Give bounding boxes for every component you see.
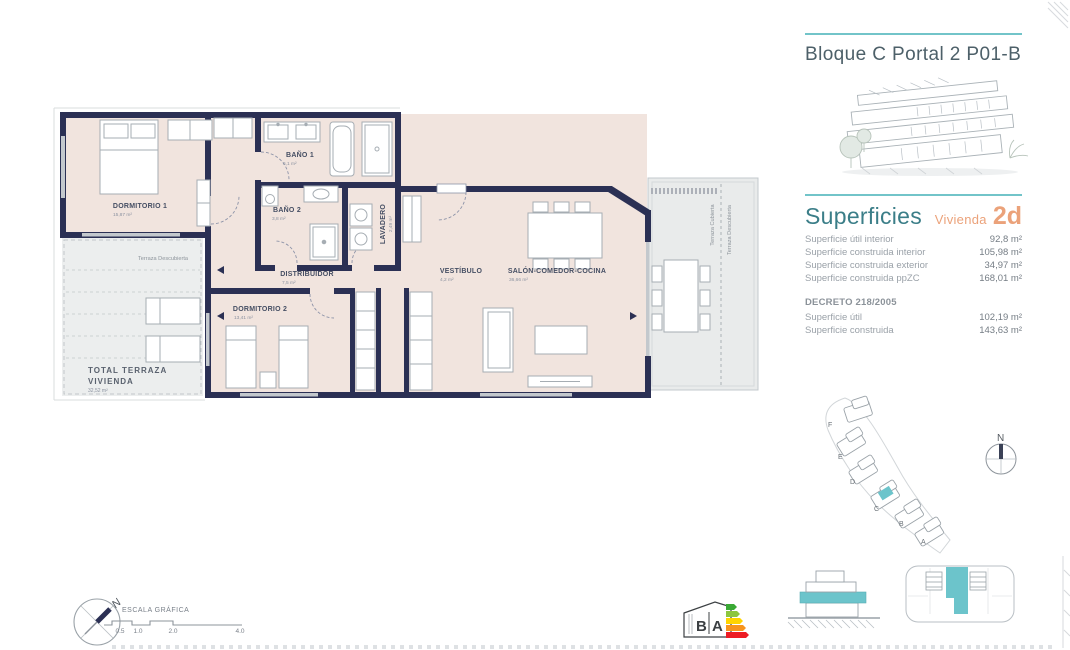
energy-arrows	[726, 604, 749, 638]
row-value: 34,97 m²	[985, 259, 1023, 272]
decreto-table: Superficie útil 102,19 m² Superficie con…	[805, 311, 1022, 337]
energy-letter-a: A	[712, 618, 723, 635]
site-label-d: D	[850, 479, 855, 486]
row-value: 168,01 m²	[979, 272, 1022, 285]
row-label: Superficie construida ppZC	[805, 272, 920, 285]
room-area-dormitorio1: 15,87 m²	[113, 212, 132, 218]
page-title: Bloque C Portal 2 P01-B	[805, 44, 1035, 66]
table-row: Superficie construida ppZC 168,01 m²	[805, 272, 1022, 285]
room-label-vestibulo: VESTÍBULO	[440, 266, 483, 275]
vivienda-label: Vivienda	[935, 212, 987, 227]
entrance-door-leaf	[437, 184, 466, 193]
room-label-dormitorio1: DORMITORIO 1	[113, 203, 167, 210]
room-area-bano2: 3,8 m²	[272, 216, 286, 222]
room-area-lavadero: 2,49 m²	[388, 215, 394, 232]
superficies-header: Superficies Vivienda 2d	[805, 202, 1022, 231]
terrace-open-label: Terraza Descubierta	[727, 204, 733, 255]
room-area-distribuidor: 7,5 m²	[282, 280, 296, 286]
scale-tick-10: 1.0	[133, 628, 142, 635]
total-terrace-area: 32,52 m²	[88, 388, 108, 394]
row-label: Superficie útil interior	[805, 233, 894, 246]
row-value: 105,98 m²	[979, 246, 1022, 259]
vivienda-code: 2d	[993, 202, 1022, 231]
table-row: Superficie útil interior 92,8 m²	[805, 233, 1022, 246]
scale-tick-20: 2.0	[168, 628, 177, 635]
terrace-left: Terraza Descubierta TOTAL TERRAZA VIVIEN…	[62, 238, 203, 396]
site-label-b: B	[899, 521, 904, 528]
sheet-edge-marks	[1048, 2, 1070, 648]
site-label-a: A	[921, 539, 926, 546]
room-label-bano2: BAÑO 2	[273, 205, 301, 214]
room-area-bano1: 6,1 m²	[283, 161, 297, 167]
row-value: 92,8 m²	[990, 233, 1022, 246]
table-row: Superficie útil 102,19 m²	[805, 311, 1022, 324]
site-label-f: F	[828, 422, 832, 429]
superficies-title: Superficies	[805, 203, 922, 230]
panel-mid-rule	[805, 194, 1022, 196]
row-label: Superficie construida	[805, 324, 894, 337]
superficies-table: Superficie útil interior 92,8 m² Superfi…	[805, 233, 1022, 285]
room-label-salon: SALÓN-COMEDOR-COCINA	[508, 266, 606, 275]
table-row: Superficie construida 143,63 m²	[805, 324, 1022, 337]
cut-off-disclaimer-text	[112, 645, 1057, 649]
room-label-distribuidor: DISTRIBUIDOR	[280, 271, 334, 278]
scale-bar: ESCALA GRÁFICA 0.5 1.0 2.0 4.0	[104, 605, 245, 635]
key-plan	[906, 566, 1014, 622]
north-compass: N	[986, 433, 1016, 474]
scale-bar-title: ESCALA GRÁFICA	[122, 605, 189, 614]
energy-letter-b: B	[696, 618, 707, 635]
terrace-left-label: Terraza Descubierta	[138, 256, 189, 262]
panel-top-rule	[805, 33, 1022, 35]
room-area-salon: 36,66 m²	[509, 277, 528, 283]
room-area-dormitorio2: 13,41 m²	[234, 315, 253, 321]
site-label-c: C	[874, 506, 879, 513]
room-label-dormitorio2: DORMITORIO 2	[233, 306, 287, 313]
site-label-e: E	[838, 454, 843, 461]
terrace-covered-label: Terraza Cubierta	[710, 203, 716, 245]
table-row: Superficie construida interior 105,98 m²	[805, 246, 1022, 259]
scale-tick-40: 4.0	[235, 628, 244, 635]
north-label: N	[997, 433, 1004, 444]
scale-tick-05: 0.5	[115, 628, 124, 635]
building-sketch	[840, 72, 1028, 176]
room-label-lavadero: LAVADERO	[380, 204, 387, 245]
table-row: Superficie construida exterior 34,97 m²	[805, 259, 1022, 272]
row-value: 102,19 m²	[979, 311, 1022, 324]
total-terrace-line2: VIVIENDA	[88, 377, 134, 386]
section-diagram	[788, 571, 880, 628]
decreto-title: DECRETO 218/2005	[805, 297, 897, 308]
site-plan: F E D C B A	[826, 396, 950, 553]
row-label: Superficie construida interior	[805, 246, 925, 259]
room-label-bano1: BAÑO 1	[286, 150, 314, 159]
row-label: Superficie construida exterior	[805, 259, 928, 272]
room-area-vestibulo: 4,2 m²	[440, 277, 454, 283]
energy-efficiency-logo: B A	[684, 602, 749, 638]
terrace-right: Terraza Cubierta Terraza Descubierta	[648, 178, 758, 390]
section-highlighted-floor	[800, 592, 866, 603]
row-label: Superficie útil	[805, 311, 862, 324]
row-value: 143,63 m²	[979, 324, 1022, 337]
total-terrace-line1: TOTAL TERRAZA	[88, 366, 167, 375]
outdoor-dining-set	[652, 260, 710, 332]
